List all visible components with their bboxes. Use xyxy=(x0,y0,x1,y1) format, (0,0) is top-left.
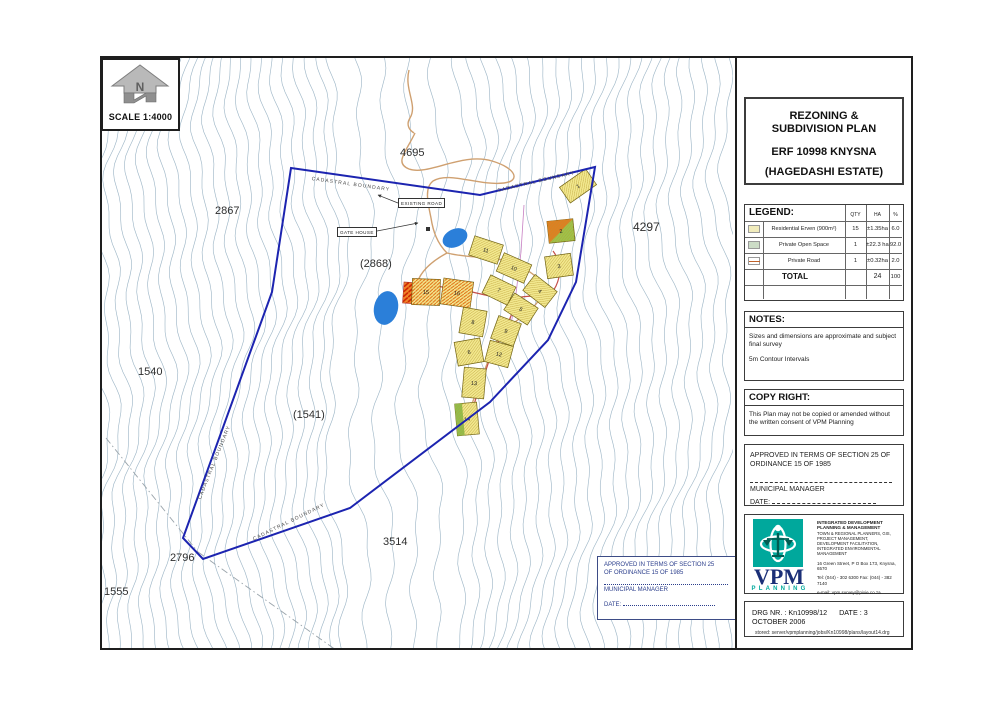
date-label: DATE: xyxy=(750,499,770,506)
copyright-box: COPY RIGHT: This Plan may not be copied … xyxy=(744,389,904,436)
firm-tagline: INTEGRATED DEVELOPMENT PLANNING & MANAGE… xyxy=(817,520,901,530)
erf-plot-2: 2 xyxy=(547,219,575,244)
drg-box: DRG NR. : Kn10998/12DATE : 3 OCTOBER 200… xyxy=(744,601,904,637)
contour-line xyxy=(92,52,121,652)
firm-subtitle: PLANNING xyxy=(747,586,813,592)
notes-box: NOTES: Sizes and dimensions are approxim… xyxy=(744,311,904,381)
drawing-sheet: 12345101178961213141516 N SCALE 1:4000 4… xyxy=(0,0,1000,707)
legend-col-ha: HA xyxy=(866,212,889,218)
firm-address: 16 Green Street, P O Box 173, Knysna, 65… xyxy=(817,561,901,571)
contour-line xyxy=(82,52,110,652)
contour-line xyxy=(213,52,244,652)
existing-road-line xyxy=(408,70,414,133)
signature-line xyxy=(604,577,728,585)
legend-total-label: TOTAL xyxy=(745,269,845,285)
estate-title: (HAGEDASHI ESTATE) xyxy=(746,166,902,178)
legend-row-ha: ±22.3 ha xyxy=(866,237,889,253)
date-line xyxy=(623,600,715,606)
svg-text:N: N xyxy=(136,80,145,94)
legend-row-pct: 6.0 xyxy=(889,221,902,237)
erf-plot-13: 13 xyxy=(462,367,487,399)
scale-label: SCALE 1:4000 xyxy=(103,112,178,122)
contour-line xyxy=(315,52,340,652)
erf-plot-8: 8 xyxy=(459,307,487,337)
map-approval-line2: OF ORDINANCE 15 OF 1985 xyxy=(604,570,730,578)
signature-line xyxy=(750,477,892,483)
legend-col-pct: % xyxy=(889,212,902,218)
swatch-private-road xyxy=(748,257,760,265)
contour-line xyxy=(567,52,595,652)
erf-number-label: 2867 xyxy=(215,205,239,217)
copyright-header: COPY RIGHT: xyxy=(745,390,903,406)
legend-header: LEGEND: xyxy=(749,207,794,218)
north-scale-box: N SCALE 1:4000 xyxy=(101,58,180,131)
erf-number-label: 4297 xyxy=(633,220,660,234)
map-approval-box: APPROVED IN TERMS OF SECTION 25 OF ORDIN… xyxy=(597,556,737,620)
legend-row-label: Private Open Space xyxy=(763,237,845,253)
approval-line1: APPROVED IN TERMS OF SECTION 25 OF xyxy=(750,451,898,460)
contour-line xyxy=(349,52,375,652)
erf-number: 2 xyxy=(559,229,563,235)
erf-number-label: 2796 xyxy=(170,552,194,564)
erf-number: 15 xyxy=(423,290,429,296)
erf-number-label: 3514 xyxy=(383,536,407,548)
date-line xyxy=(772,499,876,504)
erf-number-label: (2868) xyxy=(360,258,392,270)
swatch-residential-erven xyxy=(748,225,760,233)
gate-house-label: GATE HOUSE xyxy=(337,227,377,237)
plan-title: REZONING & SUBDIVISION PLAN xyxy=(746,110,902,136)
notes-header: NOTES: xyxy=(745,312,903,328)
legend-col-qty: QTY xyxy=(845,212,866,218)
drg-stored-path: stored: server/vpmplanning/jobs/Kn10998/… xyxy=(745,630,903,636)
contour-line xyxy=(324,52,349,652)
contour-line xyxy=(418,52,448,652)
erf-number-label: 4695 xyxy=(400,147,424,159)
erf-plot-3: 3 xyxy=(545,253,574,278)
road-line-symbol xyxy=(749,261,760,262)
approval-panel: APPROVED IN TERMS OF SECTION 25 OF ORDIN… xyxy=(744,444,904,506)
erf-plot-15: 15 xyxy=(412,279,441,306)
north-arrow-icon: N xyxy=(104,60,177,106)
leader-arrow xyxy=(378,195,398,203)
erf-number-label: 1555 xyxy=(104,586,128,598)
legend-row-label: Residential Erven (900m²) xyxy=(763,221,845,237)
contour-line xyxy=(303,52,329,652)
legend-row-qty: 15 xyxy=(845,221,866,237)
legend-box: LEGEND: QTY HA % Residential Erven (900m… xyxy=(744,204,904,301)
map-approval-signatory: MUNICIPAL MANAGER xyxy=(604,587,730,595)
map-approval-date-row: DATE: xyxy=(604,600,730,610)
legend-row-pct: 2.0 xyxy=(889,253,902,269)
legend-total-pct: 100 xyxy=(889,269,902,285)
leader-arrow xyxy=(377,223,418,231)
note-1: Sizes and dimensions are approximate and… xyxy=(749,333,899,349)
legend-grid-line xyxy=(745,285,902,286)
firm-block: VPM PLANNING INTEGRATED DEVELOPMENT PLAN… xyxy=(744,514,904,594)
legend-row-qty: 1 xyxy=(845,253,866,269)
erf-number: 13 xyxy=(471,381,478,388)
approval-signatory: MUNICIPAL MANAGER xyxy=(750,485,898,494)
contour-line xyxy=(202,52,234,652)
legend-row-pct: 92.0 xyxy=(889,237,902,253)
date-label: DATE: xyxy=(604,602,621,608)
contour-line xyxy=(269,52,297,652)
pond xyxy=(371,289,402,327)
firm-services: TOWN & REGIONAL PLANNERS, GIS, PROJECT M… xyxy=(817,532,901,557)
erf-plot-10: 10 xyxy=(496,253,532,283)
drg-number: DRG NR. : Kn10998/12 xyxy=(752,608,827,617)
contour-line xyxy=(395,52,424,652)
approval-date-row: DATE: xyxy=(750,498,898,507)
servitude-line xyxy=(198,552,336,650)
firm-email: e-mail: vpm.survey@pixie.co.za xyxy=(817,590,901,595)
contour-line xyxy=(281,52,309,652)
legend-row-qty: 1 xyxy=(845,237,866,253)
note-2: 5m Contour Intervals xyxy=(749,356,899,364)
legend-total-ha: 24 xyxy=(866,269,889,285)
contour-line xyxy=(135,52,166,652)
erf-number-label: 1540 xyxy=(138,366,162,378)
contour-line xyxy=(517,52,548,652)
title-block: REZONING & SUBDIVISION PLAN ERF 10998 KN… xyxy=(744,97,904,185)
contour-line xyxy=(190,52,222,652)
erf-title: ERF 10998 KNYSNA xyxy=(746,146,902,158)
firm-name: VPM xyxy=(749,566,809,588)
copyright-body: This Plan may not be copied or amended w… xyxy=(745,406,903,432)
legend-row-label: Private Road xyxy=(763,253,845,269)
gate-house-structure xyxy=(426,227,430,231)
legend-row-ha: ±1.35ha xyxy=(866,221,889,237)
erf-plot-6: 6 xyxy=(454,338,484,366)
erf-number-label: (1541) xyxy=(293,409,325,421)
erf-number: 16 xyxy=(453,291,460,298)
contour-line xyxy=(530,52,560,652)
legend-row-ha: ±0.32ha xyxy=(866,253,889,269)
vpm-logo-icon xyxy=(753,519,803,567)
approval-line2: ORDINANCE 15 OF 1985 xyxy=(750,460,898,469)
contour-line xyxy=(542,52,572,652)
firm-phone: Tel: (044) - 302 6300 Fax: (044) - 382 7… xyxy=(817,575,901,585)
existing-road-label: EXISTING ROAD xyxy=(398,198,445,208)
contour-line xyxy=(372,52,400,652)
swatch-private-open-space xyxy=(748,241,760,249)
erf-plot-11: 11 xyxy=(469,236,504,264)
erf-plot-16: 16 xyxy=(440,278,473,308)
map-approval-line1: APPROVED IN TERMS OF SECTION 25 xyxy=(604,562,730,570)
